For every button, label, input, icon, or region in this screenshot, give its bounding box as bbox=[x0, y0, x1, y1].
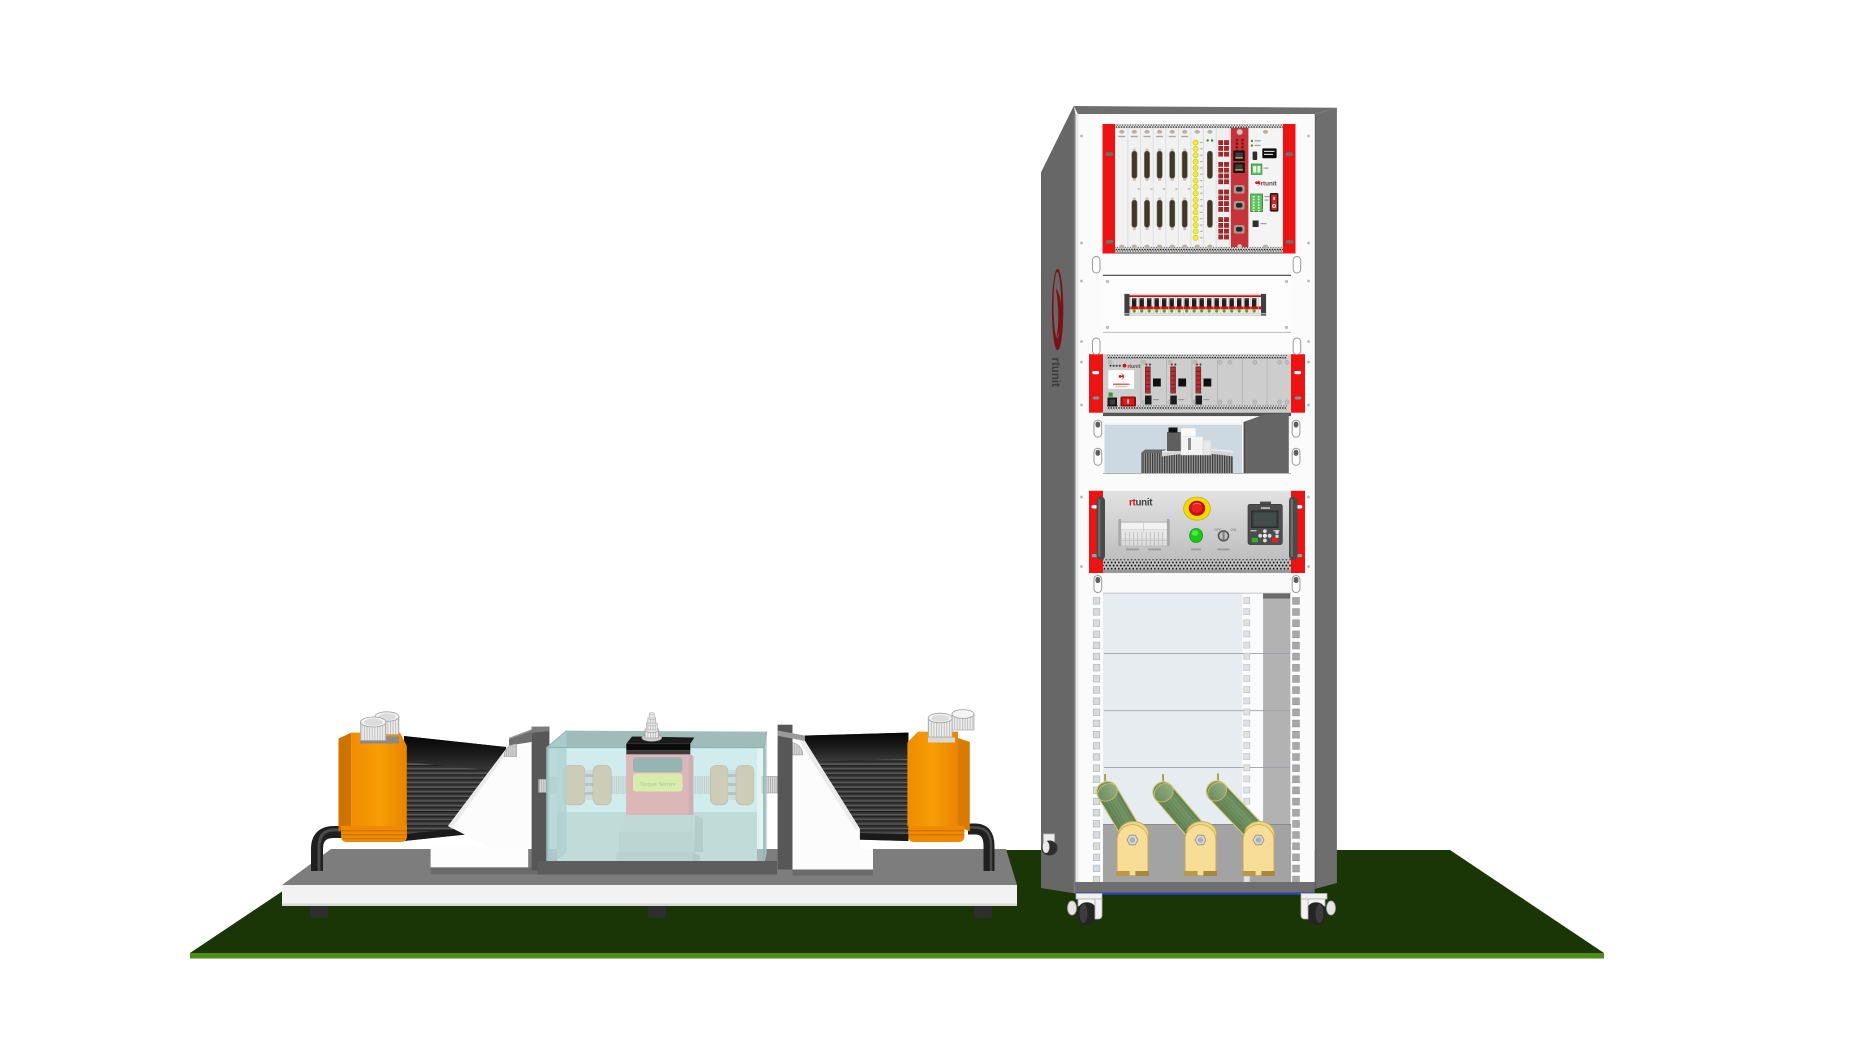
svg-text:ON: ON bbox=[1231, 528, 1237, 532]
svg-text:rtunit: rtunit bbox=[1261, 180, 1278, 187]
svg-text:rtunit: rtunit bbox=[1128, 364, 1141, 370]
svg-text:rtunit: rtunit bbox=[1129, 498, 1153, 509]
svg-text:rtunit: rtunit bbox=[1049, 358, 1061, 388]
